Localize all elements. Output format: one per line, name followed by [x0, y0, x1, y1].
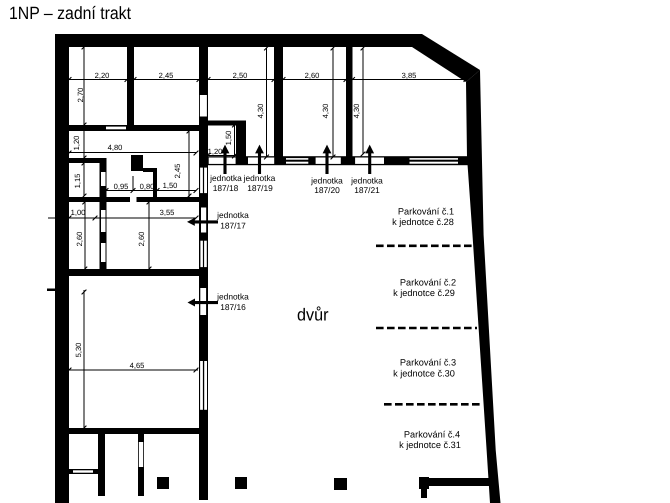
svg-text:187/18: 187/18	[213, 183, 239, 193]
svg-text:2,50: 2,50	[233, 71, 248, 80]
svg-text:k jednotce č.29: k jednotce č.29	[393, 288, 455, 298]
svg-text:k jednotce č.30: k jednotce č.30	[393, 369, 455, 379]
svg-text:Parkování č.1: Parkování č.1	[398, 207, 454, 217]
svg-text:1,20: 1,20	[72, 136, 81, 151]
svg-text:3,85: 3,85	[402, 71, 417, 80]
svg-text:Parkování č.4: Parkování č.4	[404, 430, 460, 440]
svg-text:1,20: 1,20	[208, 147, 223, 156]
svg-text:k jednotce č.31: k jednotce č.31	[399, 440, 461, 450]
svg-text:1,15: 1,15	[73, 174, 82, 189]
svg-text:1,50: 1,50	[224, 131, 233, 146]
svg-text:187/17: 187/17	[220, 221, 246, 231]
svg-text:4,30: 4,30	[256, 104, 265, 119]
svg-text:4,30: 4,30	[321, 104, 330, 119]
svg-text:2,60: 2,60	[75, 232, 84, 247]
svg-text:Parkování č.3: Parkování č.3	[400, 358, 456, 368]
svg-text:jednotka: jednotka	[310, 176, 343, 186]
svg-text:Parkování č.2: Parkování č.2	[400, 278, 456, 288]
svg-text:2,45: 2,45	[173, 164, 182, 179]
svg-text:187/20: 187/20	[314, 185, 340, 195]
svg-text:2,20: 2,20	[95, 71, 110, 80]
svg-text:k jednotce č.28: k jednotce č.28	[392, 217, 454, 227]
svg-text:jednotka: jednotka	[216, 292, 249, 302]
svg-text:3,55: 3,55	[160, 208, 175, 217]
svg-text:jednotka: jednotka	[209, 173, 242, 183]
svg-text:4,30: 4,30	[352, 104, 361, 119]
svg-text:jednotka: jednotka	[243, 173, 276, 183]
svg-text:0,95: 0,95	[114, 182, 129, 191]
svg-text:1,50: 1,50	[163, 181, 178, 190]
svg-text:2,70: 2,70	[76, 88, 85, 103]
svg-text:187/21: 187/21	[354, 185, 380, 195]
svg-text:jednotka: jednotka	[350, 176, 383, 186]
svg-text:2,45: 2,45	[159, 71, 174, 80]
svg-text:2,60: 2,60	[137, 232, 146, 247]
svg-text:4,65: 4,65	[130, 361, 145, 370]
svg-text:1,00: 1,00	[71, 208, 86, 217]
svg-text:1NP – zadní trakt: 1NP – zadní trakt	[9, 3, 131, 23]
svg-text:187/19: 187/19	[247, 183, 273, 193]
svg-text:0,80: 0,80	[140, 182, 155, 191]
svg-text:187/16: 187/16	[220, 302, 246, 312]
svg-text:dvůr: dvůr	[297, 305, 329, 325]
svg-text:2,60: 2,60	[305, 71, 320, 80]
svg-text:jednotka: jednotka	[216, 210, 249, 220]
svg-text:5,30: 5,30	[74, 343, 83, 358]
svg-text:4,80: 4,80	[108, 143, 123, 152]
